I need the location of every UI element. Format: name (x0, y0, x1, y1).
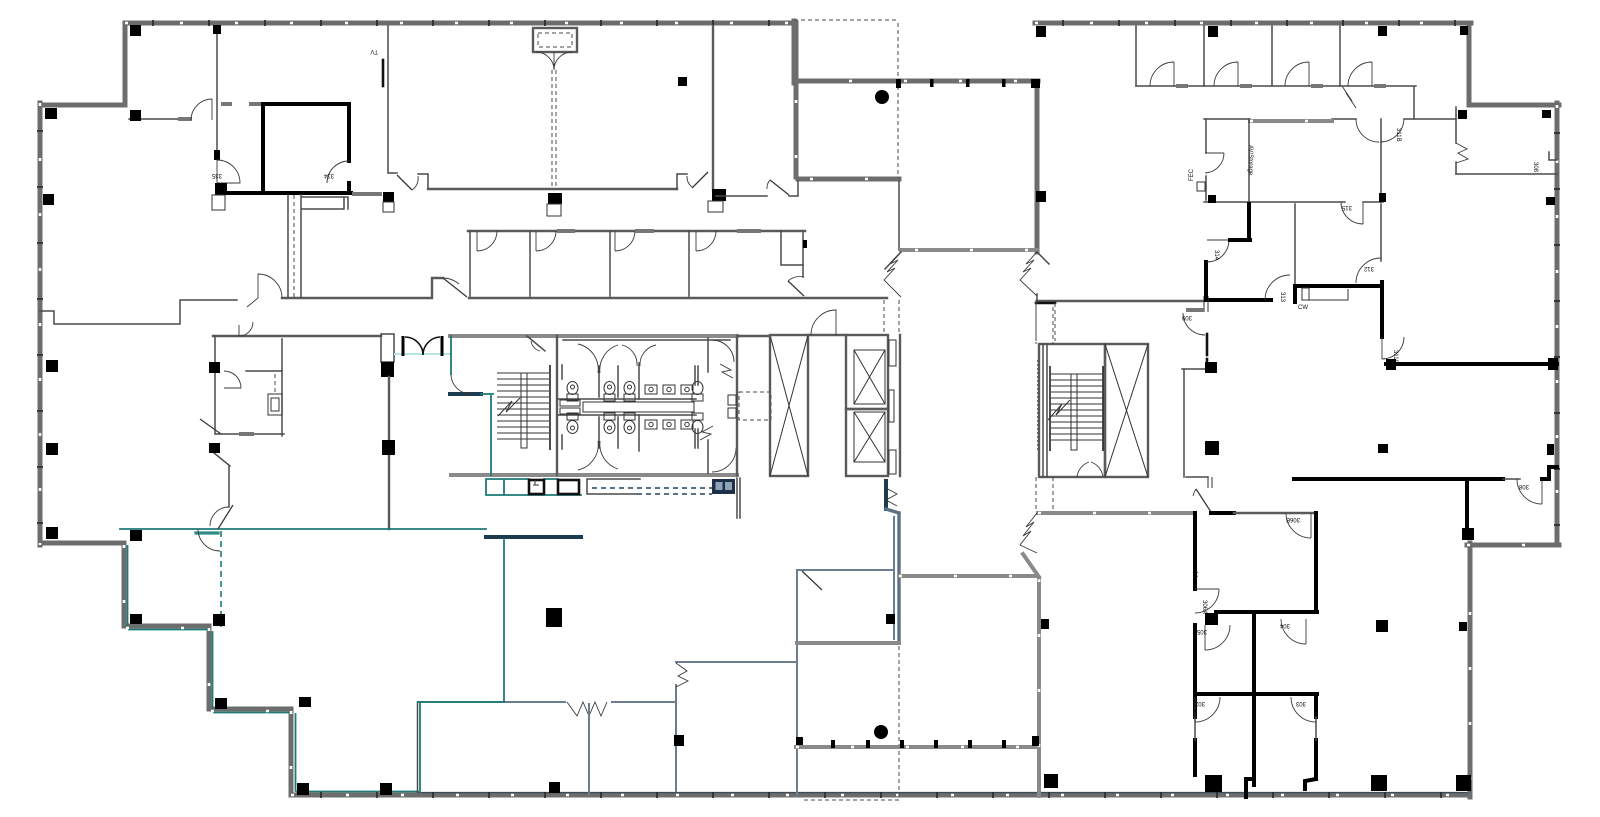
svg-text:308: 308 (1532, 162, 1538, 173)
svg-text:311B: 311B (1395, 128, 1401, 142)
svg-text:312: 312 (1363, 265, 1374, 271)
svg-text:306B: 306B (1286, 516, 1300, 522)
svg-text:308: 308 (1518, 483, 1529, 489)
svg-text:306A: 306A (1201, 600, 1207, 614)
svg-text:305: 305 (1196, 628, 1207, 634)
svg-text:303: 303 (1295, 700, 1306, 706)
svg-text:334: 334 (323, 172, 334, 178)
svg-text:314: 314 (1213, 250, 1219, 261)
svg-text:313: 313 (1279, 292, 1285, 303)
svg-text:TV: TV (370, 48, 378, 54)
svg-text:309: 309 (1181, 314, 1192, 320)
svg-text:335: 335 (211, 172, 222, 178)
svg-text:AV/Storage: AV/Storage (1247, 145, 1253, 176)
svg-text:TV: TV (1194, 570, 1200, 578)
svg-text:CW: CW (1298, 305, 1308, 311)
svg-text:304: 304 (1279, 622, 1290, 628)
svg-text:315: 315 (1341, 204, 1352, 210)
svg-text:FEC: FEC (1189, 168, 1195, 181)
svg-text:302: 302 (1194, 700, 1205, 706)
